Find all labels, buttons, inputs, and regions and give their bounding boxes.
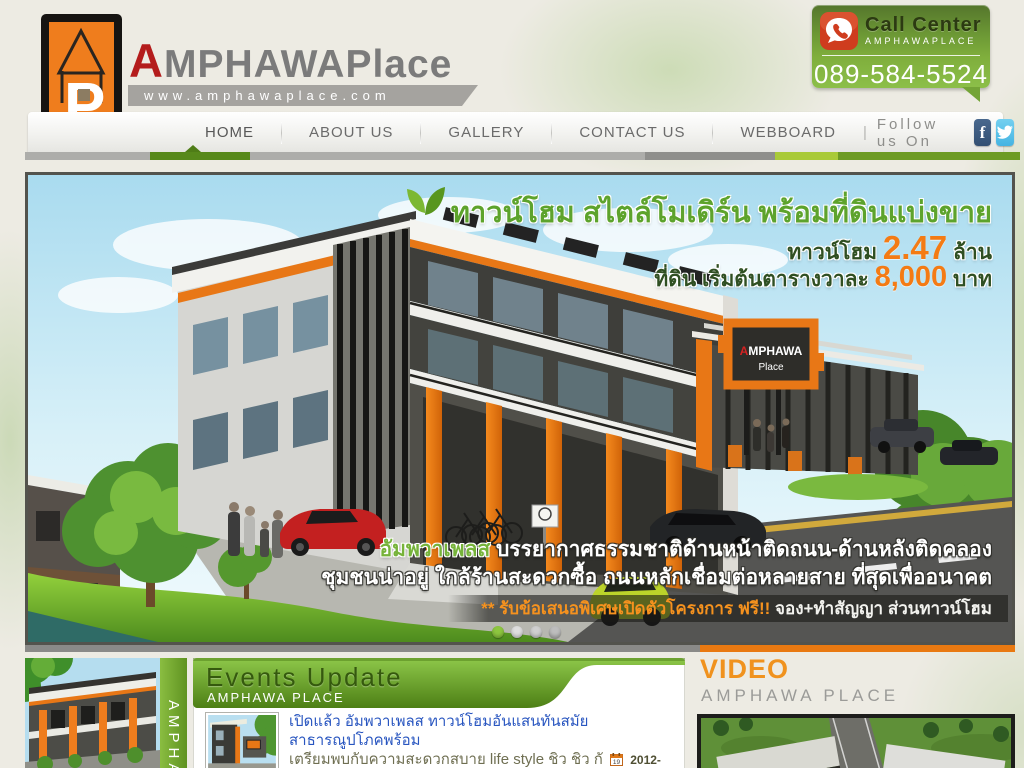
hero-caption-line2: ชุมชนน่าอยู่ ใกล้ร้านสะดวกซื้อ ถนนหลักเช…	[321, 561, 992, 594]
brand-first-letter: A	[129, 34, 164, 87]
slider-pagination	[492, 626, 568, 638]
side-promo-image[interactable]	[25, 658, 160, 768]
land-price-value: 8,000	[875, 261, 948, 293]
nav-item-about-us[interactable]: ABOUT US	[282, 124, 420, 141]
news-thumbnail[interactable]	[205, 712, 279, 768]
brand-rest: MPHAWA	[164, 43, 346, 86]
phone-icon	[820, 12, 858, 50]
calendar-icon: 19	[610, 753, 623, 766]
video-player-thumbnail[interactable]	[697, 714, 1015, 768]
hero-bottom-bar	[25, 645, 1015, 652]
call-center-subtitle: AMPHAWAPLACE	[865, 36, 982, 46]
news-title-link[interactable]: เปิดแล้ว อัมพวาเพลส ทาวน์โฮมอันแสนทันสมั…	[289, 712, 677, 750]
main-navigation: HOME ABOUT US GALLERY CONTACT US WEBBOAR…	[28, 112, 1003, 153]
follow-divider: |	[863, 124, 867, 141]
side-green-strip: AMPHAWA	[160, 658, 187, 768]
twitter-bird	[996, 125, 1014, 140]
nav-item-gallery[interactable]: GALLERY	[421, 124, 551, 141]
call-center-box: Call Center AMPHAWAPLACE 089-584-5524	[812, 5, 990, 88]
twitter-icon[interactable]	[996, 119, 1014, 146]
svg-text:Place: Place	[758, 362, 783, 373]
events-update-panel: Events Update AMPHAWA PLACE เปิดแล้ว อัม…	[193, 658, 685, 768]
slider-dot-2[interactable]	[511, 626, 523, 638]
nav-item-home[interactable]: HOME	[178, 124, 281, 141]
call-center-title: Call Center	[865, 12, 982, 35]
news-thumbnail-illustration	[208, 715, 276, 768]
news-excerpt: เตรียมพบกับความสะดวกสบาย life style ชิว …	[289, 751, 603, 768]
active-tab-underline	[150, 152, 250, 160]
follow-us-label: Follow us On	[877, 116, 957, 150]
events-subtitle: AMPHAWA PLACE	[207, 690, 345, 705]
video-section-subtitle: AMPHAWA PLACE	[701, 686, 899, 706]
video-aerial-illustration	[701, 718, 1011, 768]
svg-text:AMPHAWA: AMPHAWA	[740, 344, 803, 358]
nav-item-webboard[interactable]: WEBBOARD	[713, 124, 863, 141]
active-tab-arrow	[185, 145, 201, 152]
red-sports-car	[280, 509, 386, 556]
divider	[822, 55, 980, 56]
slider-dot-1-active[interactable]	[492, 626, 504, 638]
news-item[interactable]: เปิดแล้ว อัมพวาเพลส ทาวน์โฮมอันแสนทันสมั…	[205, 712, 677, 768]
events-title: Events Update	[206, 662, 403, 693]
townhome-thumbnail-illustration	[25, 658, 160, 768]
facebook-icon[interactable]: f	[974, 119, 991, 146]
hero-land-line: ที่ดิน เริ่มต้นตารางวาละ 8,000 บาท	[654, 261, 992, 296]
nav-item-contact-us[interactable]: CONTACT US	[552, 124, 712, 141]
hero-promo-band: ** รับข้อเสนอพิเศษเปิดตัวโครงการ ฟรี!! จ…	[448, 595, 1008, 622]
brand-suffix: Place	[345, 43, 452, 86]
side-strip-label: AMPHAWA	[165, 700, 182, 768]
website-url-banner: www.amphawaplace.com	[128, 85, 478, 106]
promo-highlight: ** รับข้อเสนอพิเศษเปิดตัวโครงการ ฟรี!!	[481, 599, 770, 618]
hero-slider: AMPHAWA Place	[25, 172, 1015, 645]
video-section-title: VIDEO	[700, 654, 789, 685]
project-name-highlight: อัมพวาเพลส	[380, 538, 491, 561]
nav-underline-strip	[25, 152, 1020, 160]
svg-text:19: 19	[613, 759, 621, 766]
call-center-phone-number: 089-584-5524	[812, 59, 990, 90]
leaf-icon	[403, 187, 447, 223]
brand-name[interactable]: AMPHAWAPlace	[129, 33, 452, 88]
slider-dot-3[interactable]	[530, 626, 542, 638]
slider-dot-4[interactable]	[549, 626, 561, 638]
